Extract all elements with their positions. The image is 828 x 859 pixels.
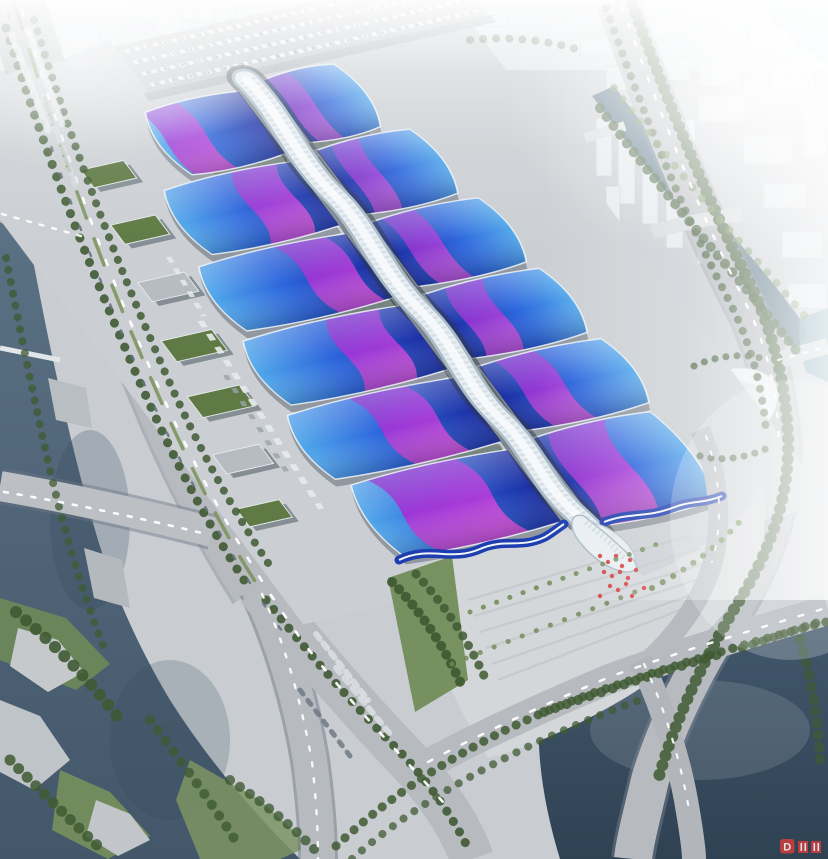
- scene-root: D: [0, 0, 828, 859]
- watermark-glyph-slot: [805, 843, 807, 851]
- aerial-rendering: D: [0, 0, 828, 859]
- watermark-glyph-slot: [818, 843, 820, 851]
- watermark-glyph: [811, 841, 821, 853]
- watermark-logo: D: [780, 839, 821, 854]
- watermark-glyph-slot: [814, 843, 816, 851]
- watermark-glyph: [798, 841, 808, 853]
- watermark-glyph-slot: [801, 843, 803, 851]
- watermark-letter: D: [783, 842, 791, 854]
